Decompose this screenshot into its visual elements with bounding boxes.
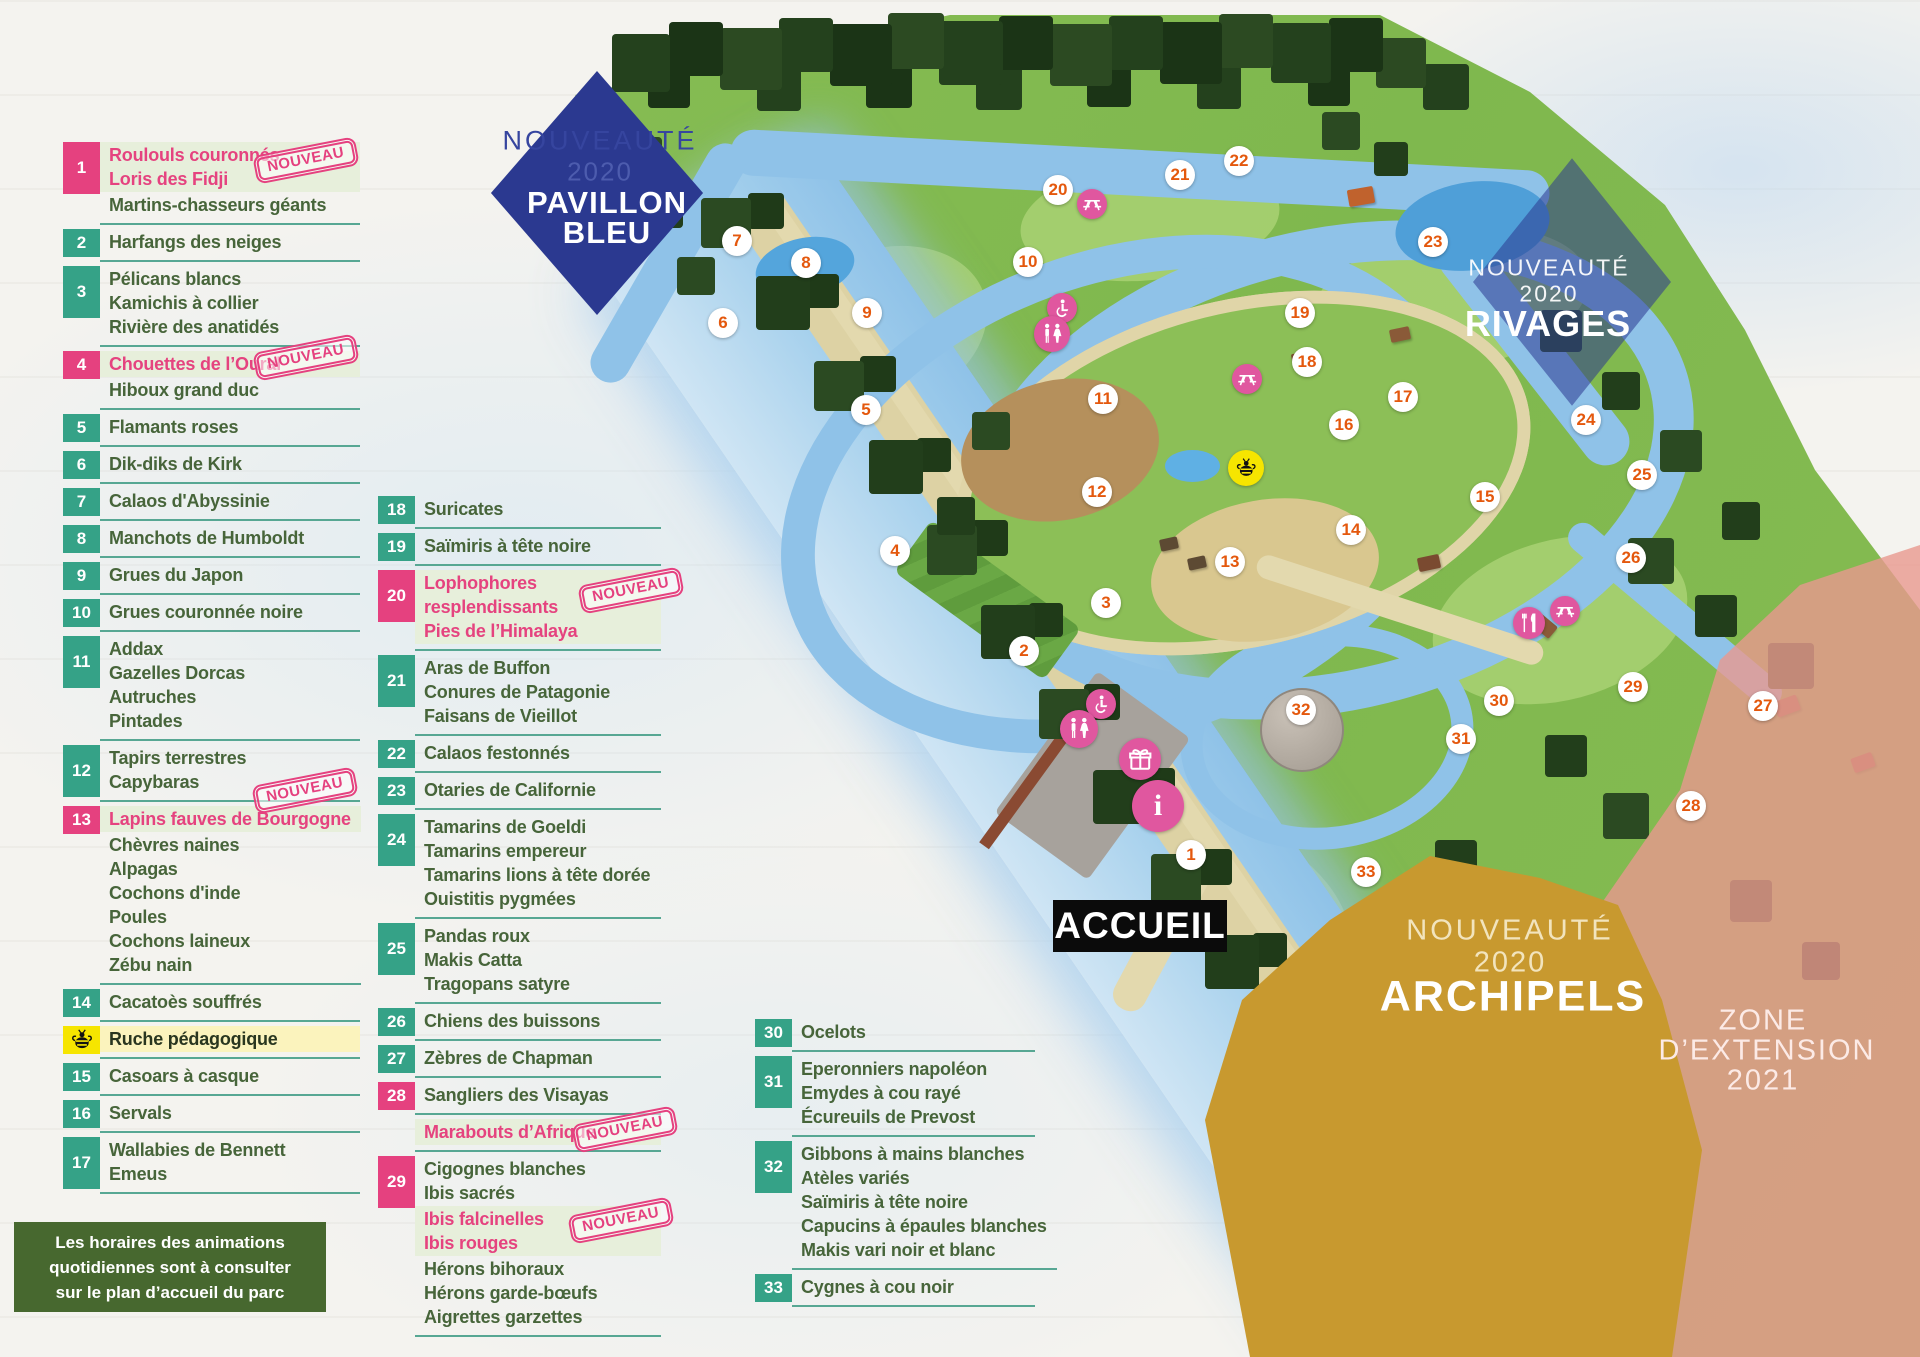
legend-number-column: 31 [755,1052,792,1137]
map-marker-18: 18 [1292,347,1322,377]
legend-text: Cacatoès souffrés [100,985,360,1022]
legend-item: 18Suricates [378,492,661,529]
legend-group: Servals [100,1100,360,1126]
legend-item: 2Harfangs des neiges [63,225,360,262]
map-marker-3: 3 [1091,588,1121,618]
small-pond [1165,450,1220,482]
legend-number: 19 [378,533,415,561]
legend-item: 10Grues couronnée noire [63,595,360,632]
legend-group: Hiboux grand duc [100,377,360,403]
legend-text: Suricates [415,492,661,529]
legend-item: 19Saïmiris à tête noire [378,529,661,566]
legend-species-line: Aras de Buffon [424,656,651,680]
legend-group: Casoars à casque [100,1063,360,1089]
pavillon-bleu-label: NOUVEAUTÉ [502,126,697,157]
legend-species-line: Calaos d'Abyssinie [109,489,350,513]
pavillon-bleu-year: 2020 [567,157,633,188]
legend-species-line: Ruche pédagogique [109,1027,350,1051]
map-marker-4: 4 [880,536,910,566]
map-marker-5: 5 [851,395,881,425]
map-marker-32: 32 [1286,695,1316,725]
legend-number-column: 21 [378,651,415,736]
legend-group: Suricates [415,496,661,522]
map-marker-33: 33 [1351,857,1381,887]
legend-species-line: Tapirs terrestres [109,746,350,770]
map-marker-1: 1 [1176,840,1206,870]
legend-species-line: Saïmiris à tête noire [424,534,651,558]
legend-number: 14 [63,989,100,1017]
legend-number: 32 [755,1141,792,1193]
legend-item: 5Flamants roses [63,410,360,447]
legend-group: Cacatoès souffrés [100,989,360,1015]
legend-text: Zèbres de Chapman [415,1041,661,1078]
legend-number: 23 [378,777,415,805]
zone-extension-year: 2021 [1727,1065,1800,1098]
legend-number: 3 [63,266,100,318]
legend-item: 3Pélicans blancsKamichis à collierRivièr… [63,262,360,347]
legend-species-line: Zèbres de Chapman [424,1046,651,1070]
legend-number: 20 [378,570,415,622]
legend-number-column: 5 [63,410,100,447]
legend-group: Grues couronnée noire [100,599,360,625]
legend-item: 16Servals [63,1096,360,1133]
legend-item: Ruche pédagogique [63,1022,360,1059]
bee-icon [1228,450,1264,486]
info-icon: i [1132,780,1184,832]
legend-number-column: 1 [63,138,100,225]
legend-species-line: Hérons garde-bœufs [424,1281,651,1305]
map-marker-24: 24 [1571,405,1601,435]
legend-item: 24Tamarins de GoeldiTamarins empereurTam… [378,810,661,919]
legend-item: 21Aras de BuffonConures de PatagonieFais… [378,651,661,736]
legend-group: Roulouls couronnésLoris des FidjiNOUVEAU [100,142,360,192]
rivages-label: NOUVEAUTÉ [1468,255,1629,282]
legend-text: Tamarins de GoeldiTamarins empereurTamar… [415,810,661,919]
legend-species-line: Manchots de Humboldt [109,526,350,550]
legend-text: Pandas rouxMakis CattaTragopans satyre [415,919,661,1004]
legend-number-column: 11 [63,632,100,741]
legend-item: 9Grues du Japon [63,558,360,595]
legend-group: Dik-diks de Kirk [100,451,360,477]
legend-species-line: Pintades [109,709,350,733]
legend-species-line: Lapins fauves de Bourgogne [109,807,351,831]
legend-text: Manchots de Humboldt [100,521,360,558]
legend-text: Harfangs des neiges [100,225,360,262]
legend-item: 8Manchots de Humboldt [63,521,360,558]
legend-group: Pélicans blancsKamichis à collierRivière… [100,266,360,340]
toilets-icon [1060,710,1098,748]
legend-number-column: 27 [378,1041,415,1078]
legend-number: 8 [63,525,100,553]
legend-number-column [63,1022,100,1059]
legend-number: 18 [378,496,415,524]
map-marker-26: 26 [1616,543,1646,573]
legend-item: 29Cigognes blanchesIbis sacrésIbis falci… [378,1152,661,1337]
legend-text: Chiens des buissons [415,1004,661,1041]
legend-text: Grues du Japon [100,558,360,595]
tree-clusters [0,0,2,2]
legend-species-line: Hiboux grand duc [109,378,350,402]
legend-text: Cygnes à cou noir [792,1270,1035,1307]
legend-species-line: Tamarins de Goeldi [424,815,651,839]
map-marker-20: 20 [1043,175,1073,205]
legend-text: Ocelots [792,1015,1035,1052]
picnic-table-icon [1550,596,1580,626]
legend-group: Zèbres de Chapman [415,1045,661,1071]
note-box: Les horaires des animations quotidiennes… [14,1222,326,1312]
legend-number-column: 12 [63,741,100,802]
legend-item: 28Sangliers des Visayas [378,1078,661,1115]
map-marker-31: 31 [1446,724,1476,754]
legend-group: Calaos festonnés [415,740,661,766]
legend-number: 24 [378,814,415,866]
archipels-title: ARCHIPELS [1380,973,1646,1022]
note-line: Les horaires des animations [55,1230,285,1255]
legend-number: 12 [63,745,100,797]
legend-species-line: Suricates [424,497,651,521]
picnic-table-icon [1077,189,1107,219]
legend-item: 33Cygnes à cou noir [755,1270,1035,1307]
map-marker-14: 14 [1336,515,1366,545]
legend-number-column: 33 [755,1270,792,1307]
legend-number: 11 [63,636,100,688]
legend-number: 27 [378,1045,415,1073]
legend-species-line: Hérons bihoraux [424,1257,651,1281]
map-marker-21: 21 [1165,160,1195,190]
pavillon-bleu-title2: BLEU [563,215,651,251]
map-marker-27: 27 [1748,691,1778,721]
legend-text: Aras de BuffonConures de PatagonieFaisan… [415,651,661,736]
legend-group: Ocelots [792,1019,1035,1045]
legend-species-line: Gibbons à mains blanches [801,1142,1047,1166]
legend-group: Chiens des buissons [415,1008,661,1034]
legend-number-column: 6 [63,447,100,484]
map-marker-13: 13 [1215,547,1245,577]
legend-number: 10 [63,599,100,627]
legend-species-line: Pélicans blancs [109,267,350,291]
zone-extension-label: ZONE [1719,1005,1808,1038]
legend-group: Marabouts d’AfriqueNOUVEAU [415,1119,661,1145]
legend-species-line: Saïmiris à tête noire [801,1190,1047,1214]
legend-text: Servals [100,1096,360,1133]
legend-number-column: 2 [63,225,100,262]
legend-species-line: Rivière des anatidés [109,315,350,339]
legend-species-line: Zébu nain [109,953,351,977]
legend-item: 4Chouettes de l’OuralNOUVEAUHiboux grand… [63,347,360,410]
legend-number-column: 9 [63,558,100,595]
map-marker-7: 7 [722,226,752,256]
legend-species-line: Gazelles Dorcas [109,661,350,685]
map-marker-16: 16 [1329,410,1359,440]
legend-group: Grues du Japon [100,562,360,588]
map-marker-17: 17 [1388,382,1418,412]
map-marker-19: 19 [1285,298,1315,328]
legend-item: 17Wallabies de BennettEmeus [63,1133,360,1194]
map-marker-25: 25 [1627,460,1657,490]
legend-number-column: 23 [378,773,415,810]
legend-number-column: 8 [63,521,100,558]
legend-column: 1Roulouls couronnésLoris des FidjiNOUVEA… [63,138,360,1194]
map-marker-12: 12 [1082,477,1112,507]
map-marker-30: 30 [1484,686,1514,716]
toilets-icon [1034,316,1070,352]
legend-group: Harfangs des neiges [100,229,360,255]
picnic-table-icon [1232,364,1262,394]
legend-number: 5 [63,414,100,442]
legend-species-line: Capucins à épaules blanches [801,1214,1047,1238]
legend-item: 7Calaos d'Abyssinie [63,484,360,521]
legend-species-line: Grues couronnée noire [109,600,350,624]
legend-species-line: Ouistitis pygmées [424,887,651,911]
legend-species-line: Ocelots [801,1020,1025,1044]
legend-text: Lapins fauves de BourgogneNOUVEAUChèvres… [100,802,361,985]
map-marker-2: 2 [1009,636,1039,666]
legend-number: 28 [378,1082,415,1110]
legend-species-line: Makis Catta [424,948,651,972]
legend-text: Saïmiris à tête noire [415,529,661,566]
legend-item: 22Calaos festonnés [378,736,661,773]
legend-group: Eperonniers napoléonEmydes à cou rayéÉcu… [792,1056,1035,1130]
legend-group: AddaxGazelles DorcasAutruchesPintades [100,636,360,734]
legend-number: 30 [755,1019,792,1047]
legend-text: LophophoresresplendissantsPies de l’Hima… [415,566,661,651]
legend-species-line: Tamarins empereur [424,839,651,863]
map-marker-9: 9 [852,298,882,328]
legend-species-line: Emydes à cou rayé [801,1081,1025,1105]
legend-column: 30Ocelots31Eperonniers napoléonEmydes à … [755,1015,1035,1307]
legend-number-column: 18 [378,492,415,529]
legend-species-line: Cygnes à cou noir [801,1275,1025,1299]
legend-group: Aras de BuffonConures de PatagonieFaisan… [415,655,661,729]
legend-species-line: Écureuils de Prevost [801,1105,1025,1129]
legend-number: 25 [378,923,415,975]
legend-item: 25Pandas rouxMakis CattaTragopans satyre [378,919,661,1004]
legend-number-column: 22 [378,736,415,773]
legend-number: 21 [378,655,415,707]
legend-text: Otaries de Californie [415,773,661,810]
legend-item: 20LophophoresresplendissantsPies de l’Hi… [378,566,661,651]
legend-species-line: Aigrettes garzettes [424,1305,651,1329]
legend-species-line: Eperonniers napoléon [801,1057,1025,1081]
legend-species-line: Cochons d'inde [109,881,351,905]
legend-number-column: 17 [63,1133,100,1194]
legend-species-line: Cochons laineux [109,929,351,953]
map-marker-28: 28 [1676,791,1706,821]
legend-species-line: Atèles variés [801,1166,1047,1190]
note-line: quotidiennes sont à consulter [49,1255,291,1280]
legend-species-line: Cigognes blanches [424,1157,651,1181]
legend-number-column [378,1115,415,1152]
legend-group: Martins-chasseurs géants [100,192,360,218]
legend-number-column: 3 [63,262,100,347]
legend-number-column: 10 [63,595,100,632]
legend-number: 9 [63,562,100,590]
legend-text: Casoars à casque [100,1059,360,1096]
legend-species-line: Grues du Japon [109,563,350,587]
legend-number-column: 28 [378,1078,415,1115]
map-marker-11: 11 [1088,384,1118,414]
map-marker-8: 8 [791,248,821,278]
legend-species-line: Servals [109,1101,350,1125]
note-line: sur le plan d’accueil du parc [56,1280,285,1305]
accueil-label: ACCUEIL [1053,900,1227,952]
bee-icon [63,1026,100,1054]
archipels-label: NOUVEAUTÉ [1406,915,1613,948]
legend-species-line: Kamichis à collier [109,291,350,315]
legend-species-line: Conures de Patagonie [424,680,651,704]
legend-text: Calaos festonnés [415,736,661,773]
legend-group: Lapins fauves de BourgogneNOUVEAU [100,806,361,832]
legend-item: 6Dik-diks de Kirk [63,447,360,484]
legend-text: Pélicans blancsKamichis à collierRivière… [100,262,360,347]
legend-number-column: 20 [378,566,415,651]
legend-group: Otaries de Californie [415,777,661,803]
legend-species-line: Pandas roux [424,924,651,948]
legend-number-column: 16 [63,1096,100,1133]
legend-group: Pandas rouxMakis CattaTragopans satyre [415,923,661,997]
rivages-title: RIVAGES [1465,303,1631,345]
legend-column: 18Suricates19Saïmiris à tête noire20Loph… [378,492,661,1337]
legend-number: 4 [63,351,100,379]
legend-species-line: Martins-chasseurs géants [109,193,350,217]
legend-item: 14Cacatoès souffrés [63,985,360,1022]
legend-species-line: Flamants roses [109,415,350,439]
legend-number: 13 [63,806,100,834]
legend-group: Sangliers des Visayas [415,1082,661,1108]
legend-number: 1 [63,142,100,194]
map-marker-23: 23 [1418,227,1448,257]
legend-number: 31 [755,1056,792,1108]
legend-text: Roulouls couronnésLoris des FidjiNOUVEAU… [100,138,360,225]
legend-item: Marabouts d’AfriqueNOUVEAU [378,1115,661,1152]
legend-group: LophophoresresplendissantsPies de l’Hima… [415,570,661,644]
legend-species-line: Tamarins lions à tête dorée [424,863,651,887]
legend-text: Grues couronnée noire [100,595,360,632]
legend-species-line: Casoars à casque [109,1064,350,1088]
legend-item: 26Chiens des buissons [378,1004,661,1041]
map-marker-6: 6 [708,308,738,338]
legend-number-column: 30 [755,1015,792,1052]
legend-group: Ibis falcinellesIbis rougesNOUVEAU [415,1206,661,1256]
legend-text: Ruche pédagogique [100,1022,360,1059]
legend-species-line: Tragopans satyre [424,972,651,996]
legend-item: 30Ocelots [755,1015,1035,1052]
legend-species-line: Dik-diks de Kirk [109,452,350,476]
legend-number-column: 26 [378,1004,415,1041]
zone-extension-label2: D’EXTENSION [1659,1035,1876,1068]
legend-species-line: Cacatoès souffrés [109,990,350,1014]
legend-number-column: 25 [378,919,415,1004]
legend-number-column: 4 [63,347,100,410]
legend-species-line: Sangliers des Visayas [424,1083,651,1107]
legend-text: Gibbons à mains blanchesAtèles variésSaï… [792,1137,1057,1270]
legend-number-column: 14 [63,985,100,1022]
legend-group: Gibbons à mains blanchesAtèles variésSaï… [792,1141,1057,1263]
zoo-park-map: NOUVEAUTÉ 2020 PAVILLON BLEU NOUVEAUTÉ 2… [0,0,1920,1357]
legend-species-line: Emeus [109,1162,350,1186]
legend-text: AddaxGazelles DorcasAutruchesPintades [100,632,360,741]
legend-number: 16 [63,1100,100,1128]
gift-shop-icon [1119,738,1161,780]
legend-number: 6 [63,451,100,479]
legend-item: 27Zèbres de Chapman [378,1041,661,1078]
legend-number-column: 13 [63,802,100,985]
legend-number: 2 [63,229,100,257]
legend-species-line: Poules [109,905,351,929]
legend-text: Flamants roses [100,410,360,447]
legend-number: 22 [378,740,415,768]
legend-item: 31Eperonniers napoléonEmydes à cou rayéÉ… [755,1052,1035,1137]
legend-item: 32Gibbons à mains blanchesAtèles variésS… [755,1137,1035,1270]
legend-group: Chèvres nainesAlpagasCochons d'indePoule… [100,832,361,978]
legend-number: 26 [378,1008,415,1036]
legend-species-line: Chiens des buissons [424,1009,651,1033]
legend-number-column: 29 [378,1152,415,1337]
legend-species-line: Calaos festonnés [424,741,651,765]
legend-item: 11AddaxGazelles DorcasAutruchesPintades [63,632,360,741]
legend-species-line: Alpagas [109,857,351,881]
restaurant-icon [1513,607,1545,639]
legend-text: Eperonniers napoléonEmydes à cou rayéÉcu… [792,1052,1035,1137]
legend-number: 15 [63,1063,100,1091]
legend-number: 7 [63,488,100,516]
legend-group: Calaos d'Abyssinie [100,488,360,514]
legend-group: Cygnes à cou noir [792,1274,1035,1300]
legend-text: Chouettes de l’OuralNOUVEAUHiboux grand … [100,347,360,410]
legend-number-column: 19 [378,529,415,566]
legend-item: 1Roulouls couronnésLoris des FidjiNOUVEA… [63,138,360,225]
map-marker-15: 15 [1470,482,1500,512]
legend-species-line: Harfangs des neiges [109,230,350,254]
legend-text: Sangliers des Visayas [415,1078,661,1115]
map-marker-10: 10 [1013,247,1043,277]
legend-species-line: Pies de l’Himalaya [424,619,651,643]
legend-species-line: Wallabies de Bennett [109,1138,350,1162]
legend-species-line: Addax [109,637,350,661]
legend-group: Wallabies de BennettEmeus [100,1137,360,1187]
legend-number: 17 [63,1137,100,1189]
legend-group: Chouettes de l’OuralNOUVEAU [100,351,360,377]
legend-group: Ruche pédagogique [100,1026,360,1052]
legend-group: Cigognes blanchesIbis sacrés [415,1156,661,1206]
legend-group: Flamants roses [100,414,360,440]
legend-item: 15Casoars à casque [63,1059,360,1096]
legend-text: Wallabies de BennettEmeus [100,1133,360,1194]
legend-number: 29 [378,1156,415,1208]
legend-item: 23Otaries de Californie [378,773,661,810]
legend-number-column: 32 [755,1137,792,1270]
legend-species-line: Chèvres naines [109,833,351,857]
legend-number-column: 15 [63,1059,100,1096]
legend-group: Hérons bihorauxHérons garde-bœufsAigrett… [415,1256,661,1330]
map-marker-22: 22 [1224,146,1254,176]
legend-text: Calaos d'Abyssinie [100,484,360,521]
legend-group: Manchots de Humboldt [100,525,360,551]
legend-species-line: Ibis sacrés [424,1181,651,1205]
legend-species-line: Autruches [109,685,350,709]
legend-species-line: Otaries de Californie [424,778,651,802]
legend-group: Saïmiris à tête noire [415,533,661,559]
legend-species-line: Makis vari noir et blanc [801,1238,1047,1262]
legend-number: 33 [755,1274,792,1302]
legend-number-column: 7 [63,484,100,521]
legend-text: Cigognes blanchesIbis sacrésIbis falcine… [415,1152,661,1337]
legend-number-column: 24 [378,810,415,919]
legend-text: Marabouts d’AfriqueNOUVEAU [415,1115,661,1152]
map-marker-29: 29 [1618,672,1648,702]
legend-item: 13Lapins fauves de BourgogneNOUVEAUChèvr… [63,802,360,985]
legend-text: Dik-diks de Kirk [100,447,360,484]
